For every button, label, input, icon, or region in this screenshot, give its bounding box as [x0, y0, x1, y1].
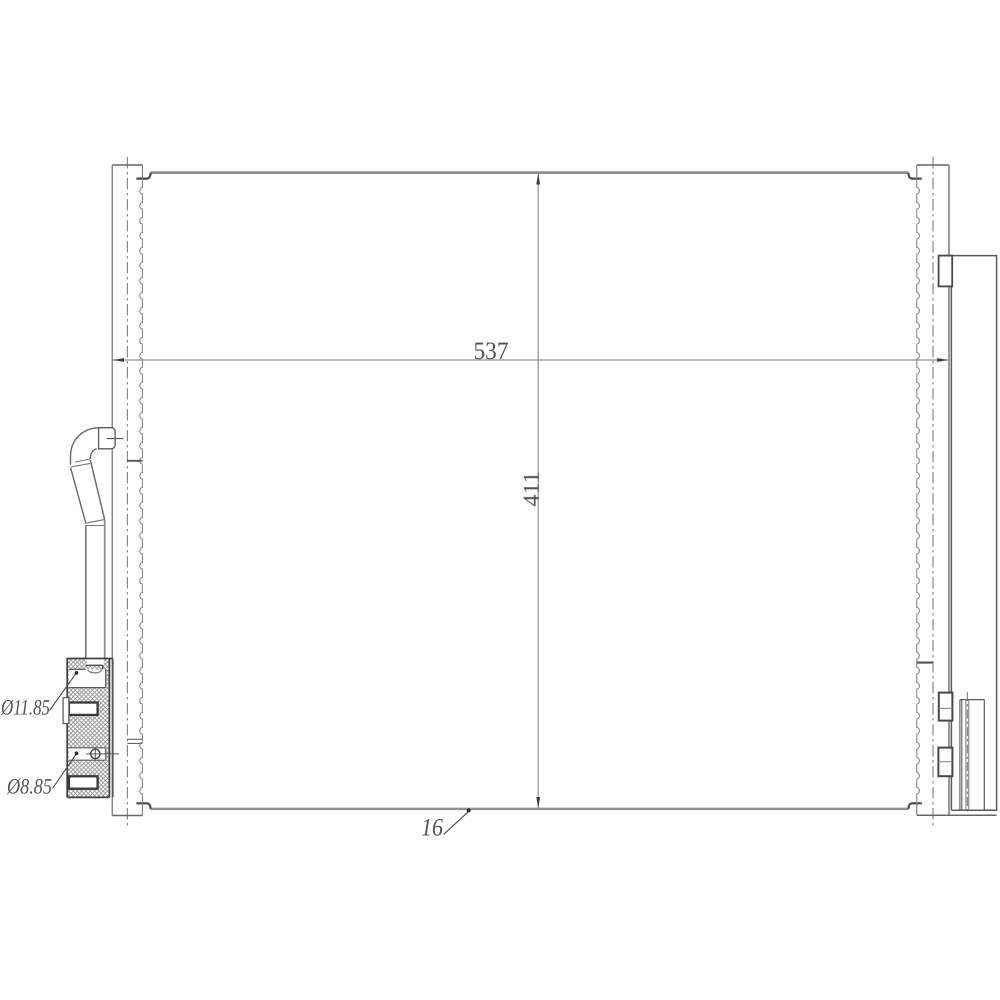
svg-text:537: 537: [473, 338, 508, 365]
svg-text:411: 411: [519, 472, 544, 507]
svg-text:Ø8.85: Ø8.85: [6, 773, 52, 798]
svg-text:Ø11.85: Ø11.85: [0, 694, 50, 719]
svg-text:16: 16: [421, 815, 443, 842]
